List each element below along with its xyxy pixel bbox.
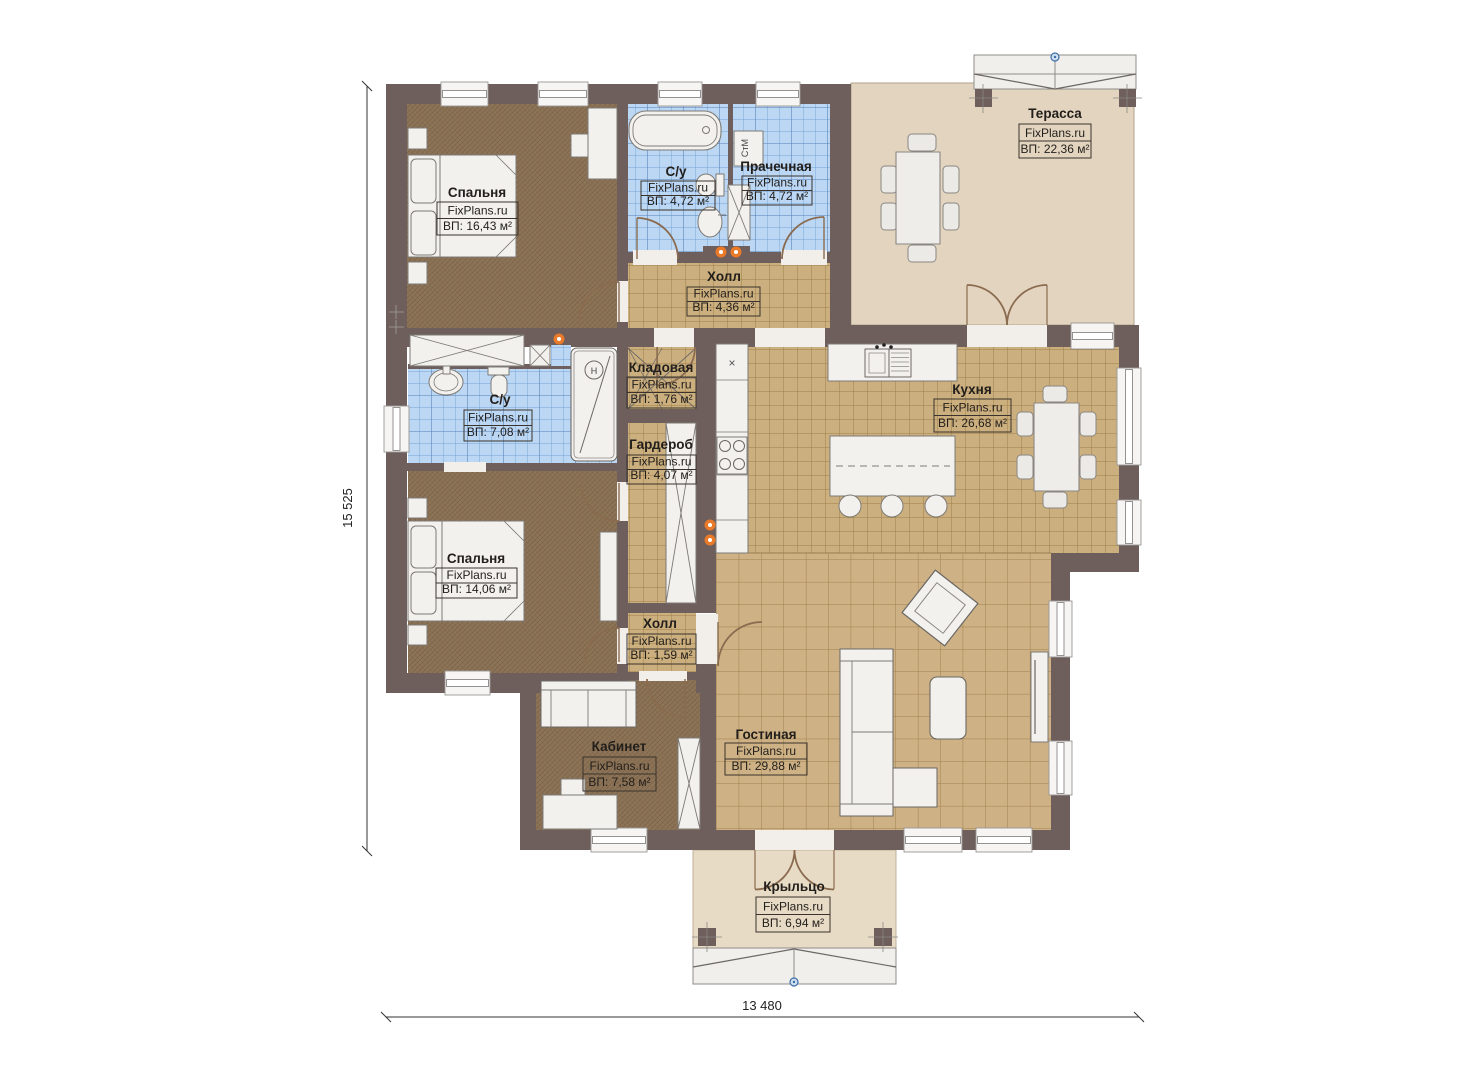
svg-text:FixPlans.ru: FixPlans.ru	[631, 455, 691, 469]
svg-text:FixPlans.ru: FixPlans.ru	[631, 634, 691, 648]
svg-text:СтМ: СтМ	[740, 139, 750, 157]
svg-text:ВП: 4,07 м²: ВП: 4,07 м²	[630, 468, 692, 482]
svg-text:Крыльцо: Крыльцо	[763, 879, 824, 894]
svg-text:Холл: Холл	[643, 616, 677, 631]
svg-text:ВП: 6,94 м²: ВП: 6,94 м²	[762, 916, 824, 930]
svg-text:ВП: 1,76 м²: ВП: 1,76 м²	[630, 392, 692, 406]
svg-text:ВП: 26,68 м²: ВП: 26,68 м²	[938, 416, 1007, 430]
svg-text:FixPlans.ru: FixPlans.ru	[648, 181, 708, 195]
svg-text:ВП: 7,58 м²: ВП: 7,58 м²	[588, 775, 650, 789]
svg-text:FixPlans.ru: FixPlans.ru	[763, 900, 823, 914]
svg-text:FixPlans.ru: FixPlans.ru	[589, 759, 649, 773]
svg-text:H: H	[591, 366, 598, 376]
svg-text:С/у: С/у	[489, 392, 511, 407]
svg-text:ВП: 1,59 м²: ВП: 1,59 м²	[630, 648, 692, 662]
svg-text:ВП: 7,08 м²: ВП: 7,08 м²	[467, 425, 529, 439]
svg-text:Холл: Холл	[707, 269, 741, 284]
svg-text:Прачечная: Прачечная	[740, 159, 812, 174]
svg-text:FixPlans.ru: FixPlans.ru	[468, 411, 528, 425]
svg-text:ВП: 4,36 м²: ВП: 4,36 м²	[692, 300, 754, 314]
svg-text:С/у: С/у	[665, 164, 687, 179]
svg-text:FixPlans.ru: FixPlans.ru	[942, 401, 1002, 415]
svg-text:FixPlans.ru: FixPlans.ru	[736, 744, 796, 758]
svg-text:FixPlans.ru: FixPlans.ru	[1025, 126, 1085, 140]
svg-text:FixPlans.ru: FixPlans.ru	[693, 287, 753, 301]
svg-text:ВП: 4,72 м²: ВП: 4,72 м²	[647, 194, 709, 208]
svg-text:15 525: 15 525	[340, 488, 355, 528]
svg-text:ВП: 14,06 м²: ВП: 14,06 м²	[442, 582, 511, 596]
svg-text:ВП: 22,36 м²: ВП: 22,36 м²	[1021, 142, 1090, 156]
svg-text:Кладовая: Кладовая	[629, 360, 694, 375]
svg-text:Гардероб: Гардероб	[629, 437, 693, 452]
svg-text:ВП: 16,43 м²: ВП: 16,43 м²	[443, 219, 512, 233]
svg-text:FixPlans.ru: FixPlans.ru	[631, 378, 691, 392]
svg-text:13 480: 13 480	[742, 998, 782, 1013]
svg-text:FixPlans.ru: FixPlans.ru	[747, 176, 807, 190]
svg-text:FixPlans.ru: FixPlans.ru	[447, 204, 507, 218]
svg-text:×: ×	[728, 356, 735, 370]
svg-text:ВП: 4,72 м²: ВП: 4,72 м²	[746, 189, 808, 203]
svg-text:Кухня: Кухня	[952, 382, 991, 397]
svg-text:Терасса: Терасса	[1028, 106, 1082, 121]
svg-text:FixPlans.ru: FixPlans.ru	[446, 568, 506, 582]
svg-text:Гостиная: Гостиная	[735, 727, 796, 742]
svg-text:Кабинет: Кабинет	[592, 739, 647, 754]
svg-text:Спальня: Спальня	[448, 185, 506, 200]
svg-text:Спальня: Спальня	[447, 551, 505, 566]
svg-text:ВП: 29,88 м²: ВП: 29,88 м²	[732, 759, 801, 773]
